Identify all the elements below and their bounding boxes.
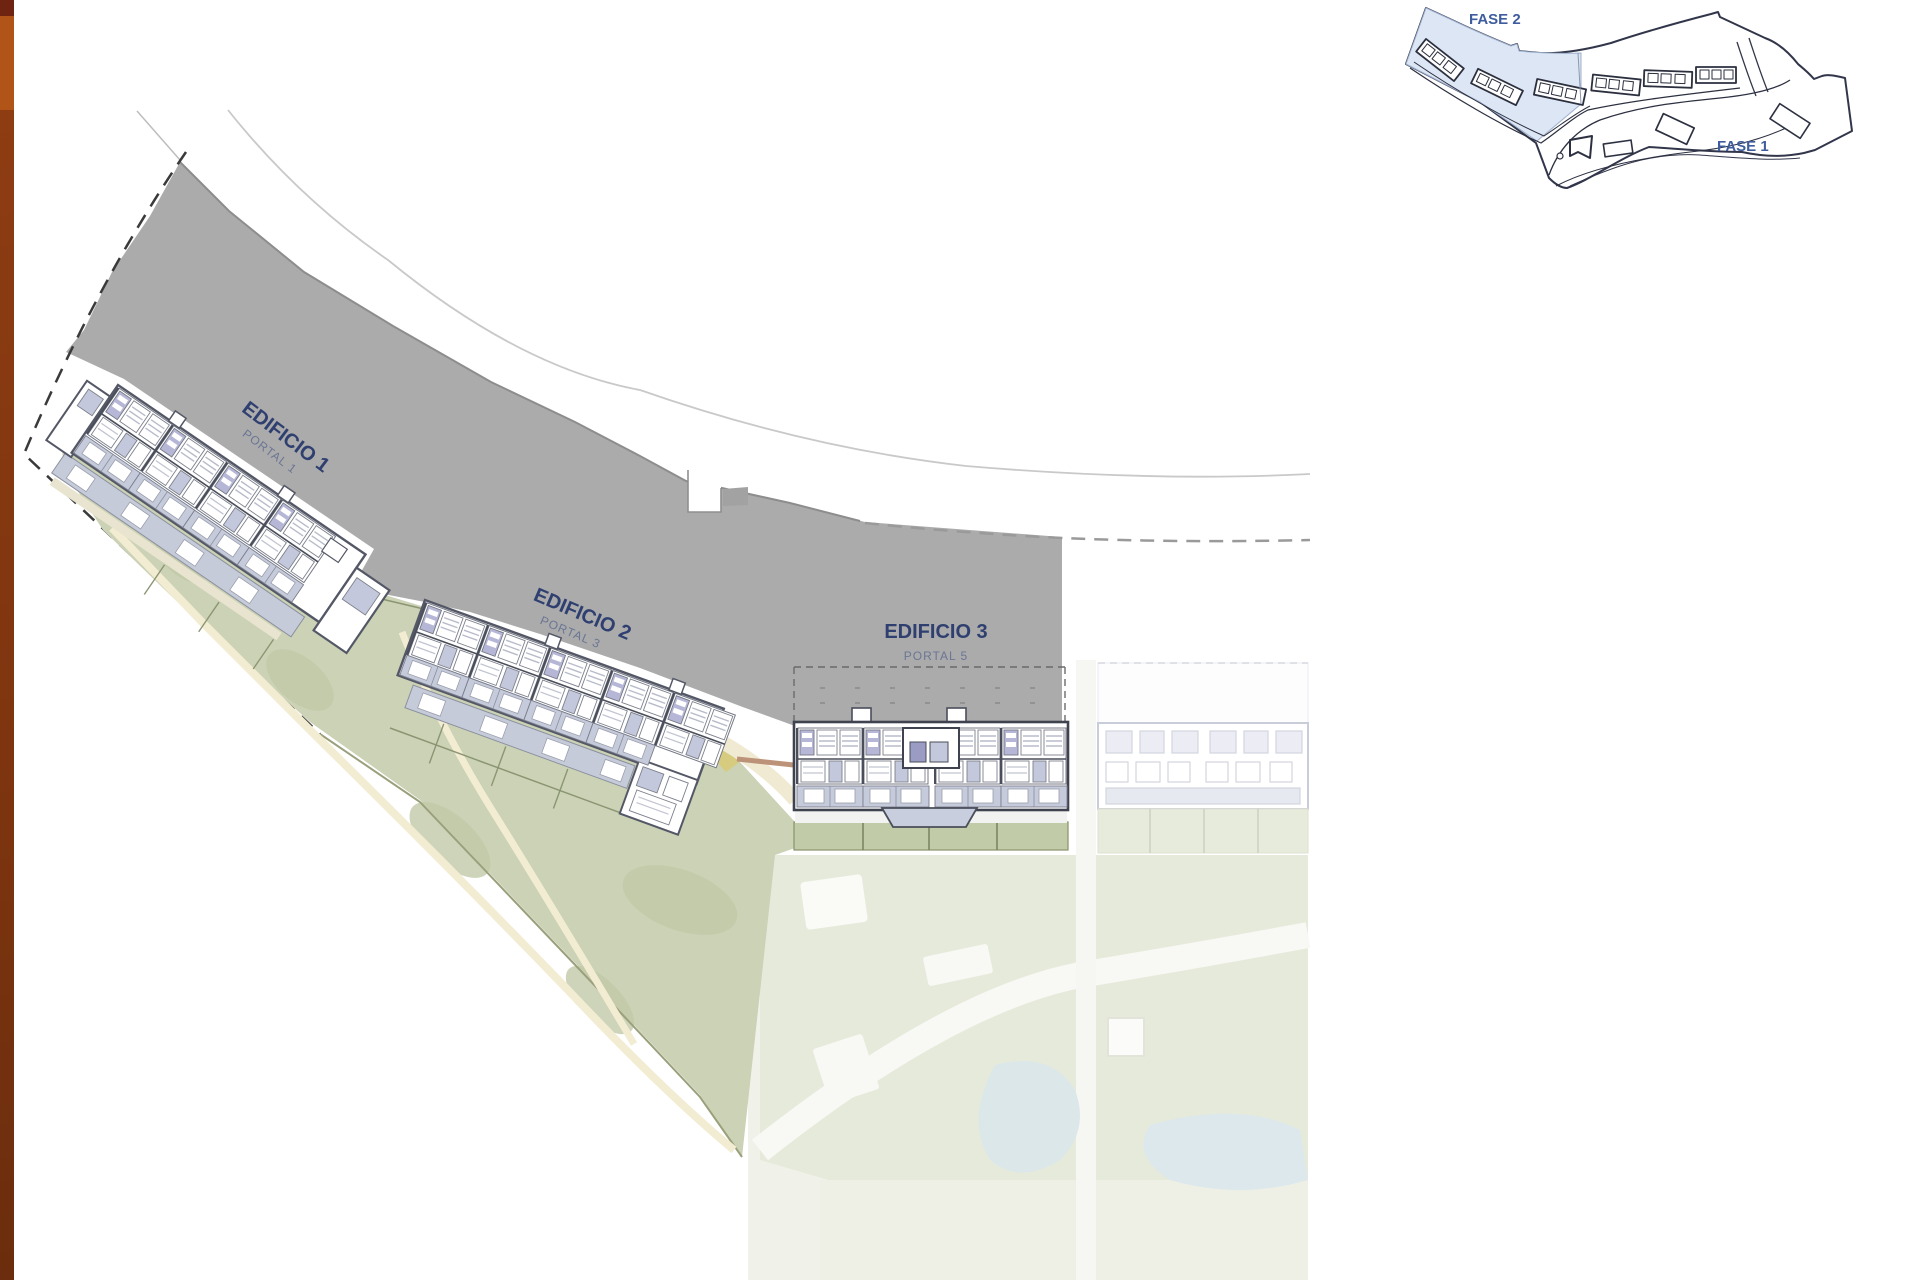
svg-text:EDIFICIO 3: EDIFICIO 3 (884, 621, 987, 643)
svg-text:FASE 1: FASE 1 (1717, 138, 1769, 155)
svg-text:PORTAL 5: PORTAL 5 (904, 649, 968, 663)
svg-text:FASE 2: FASE 2 (1469, 11, 1521, 28)
